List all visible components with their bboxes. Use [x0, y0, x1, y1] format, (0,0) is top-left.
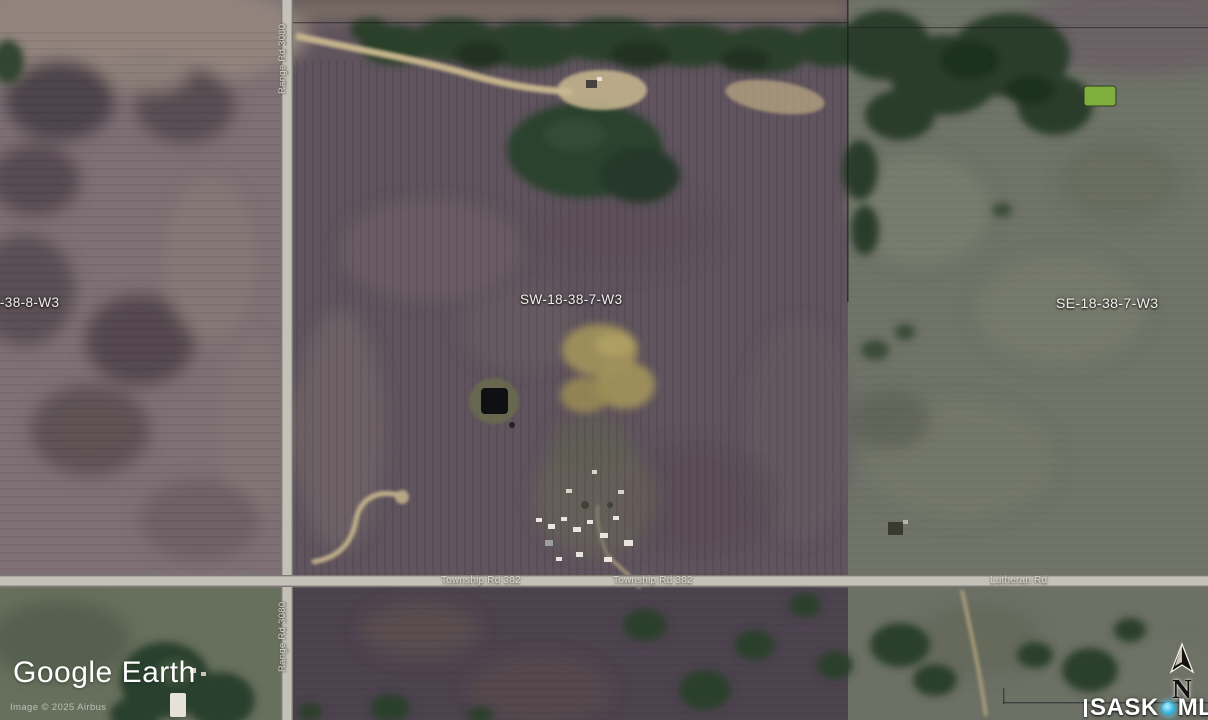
road-label-lutheran-rd: Lutheran Rd — [990, 575, 1047, 586]
parcel-label-subject: SW-18-38-7-W3 — [520, 292, 622, 307]
parcel-label-west: 8-38-8-W3 — [0, 295, 59, 310]
mls-logo-bar — [1084, 699, 1087, 717]
parcel-label-east: SE-18-38-7-W3 — [1056, 295, 1158, 311]
road-label-range-rd-top: Range Rd 3080 — [277, 6, 288, 94]
satellite-imagery — [0, 0, 1208, 720]
road-label-township-rd-east: Township Rd 382 — [613, 575, 693, 586]
road-label-range-rd-bottom: Range Rd 3080 — [277, 590, 288, 672]
road-label-township-rd-west: Township Rd 382 — [441, 575, 521, 586]
google-earth-logo: Google Earth — [13, 656, 196, 690]
google-earth-map-canvas[interactable]: 8-38-8-W3 SW-18-38-7-W3 SE-18-38-7-W3 Ra… — [0, 0, 1208, 720]
mls-logo-text-sask: SASK — [1090, 694, 1159, 720]
north-arrow-icon — [1160, 642, 1204, 676]
slough-pond-green — [1084, 86, 1116, 106]
compass: N — [1160, 642, 1204, 718]
imagery-credit: Image © 2025 Airbus — [10, 702, 106, 713]
compass-north-label: N — [1172, 674, 1192, 705]
